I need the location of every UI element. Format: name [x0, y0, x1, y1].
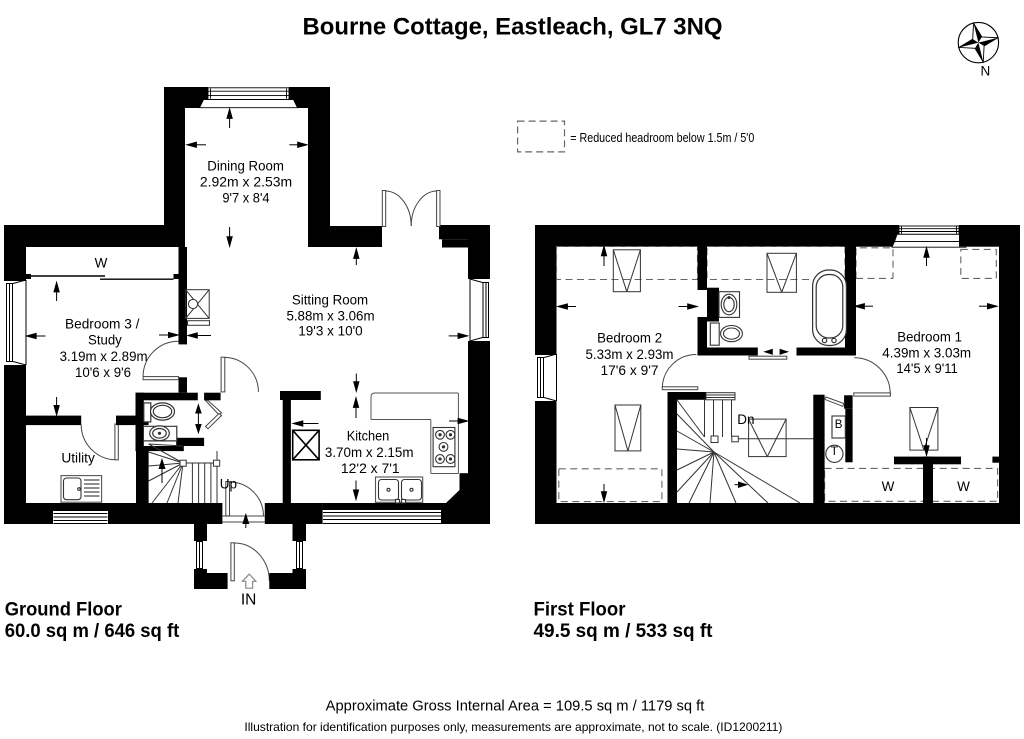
svg-text:9'7 x 8'4: 9'7 x 8'4 — [222, 191, 270, 206]
svg-text:5.88m x 3.06m: 5.88m x 3.06m — [286, 308, 374, 323]
svg-text:Kitchen: Kitchen — [347, 428, 390, 443]
svg-text:Study: Study — [88, 333, 122, 348]
svg-text:4.39m x 3.03m: 4.39m x 3.03m — [882, 345, 971, 360]
svg-text:Approximate Gross Internal Are: Approximate Gross Internal Area = 109.5 … — [326, 699, 705, 715]
svg-text:2.92m x 2.53m: 2.92m x 2.53m — [200, 175, 292, 190]
svg-text:Up: Up — [220, 477, 237, 492]
svg-text:Ground Floor: Ground Floor — [5, 600, 123, 621]
svg-text:B: B — [835, 419, 843, 431]
svg-text:Illustration for identificatio: Illustration for identification purposes… — [244, 720, 782, 734]
svg-text:3.19m x 2.89m: 3.19m x 2.89m — [60, 349, 148, 364]
svg-text:= Reduced headroom below 1.5m: = Reduced headroom below 1.5m / 5'0 — [570, 130, 754, 145]
svg-text:Dining Room: Dining Room — [207, 158, 284, 173]
svg-text:Dn: Dn — [737, 412, 754, 427]
svg-text:Sitting Room: Sitting Room — [292, 292, 368, 307]
svg-text:17'6 x 9'7: 17'6 x 9'7 — [601, 363, 659, 378]
svg-text:Bourne Cottage, Eastleach, GL7: Bourne Cottage, Eastleach, GL7 3NQ — [303, 14, 723, 41]
svg-text:Bedroom 1: Bedroom 1 — [897, 330, 962, 345]
svg-text:Bedroom 2: Bedroom 2 — [597, 331, 662, 346]
svg-text:W: W — [95, 255, 108, 270]
svg-text:IN: IN — [241, 592, 257, 609]
svg-text:60.0 sq m / 646 sq ft: 60.0 sq m / 646 sq ft — [5, 621, 180, 642]
svg-text:12'2 x 7'1: 12'2 x 7'1 — [341, 461, 400, 476]
svg-text:W: W — [957, 479, 970, 494]
svg-text:T: T — [831, 445, 838, 458]
svg-text:First Floor: First Floor — [534, 600, 627, 621]
svg-text:W: W — [882, 479, 895, 494]
svg-text:5.33m x 2.93m: 5.33m x 2.93m — [586, 347, 674, 362]
svg-text:Utility: Utility — [61, 450, 95, 465]
svg-text:19'3 x 10'0: 19'3 x 10'0 — [298, 324, 362, 339]
svg-text:3.70m x 2.15m: 3.70m x 2.15m — [325, 445, 414, 460]
svg-text:10'6 x 9'6: 10'6 x 9'6 — [75, 365, 131, 380]
svg-text:N: N — [981, 63, 991, 78]
svg-text:Bedroom 3 /: Bedroom 3 / — [65, 316, 140, 331]
svg-text:49.5 sq m / 533 sq ft: 49.5 sq m / 533 sq ft — [534, 621, 714, 642]
svg-text:14'5 x 9'11: 14'5 x 9'11 — [896, 361, 957, 376]
